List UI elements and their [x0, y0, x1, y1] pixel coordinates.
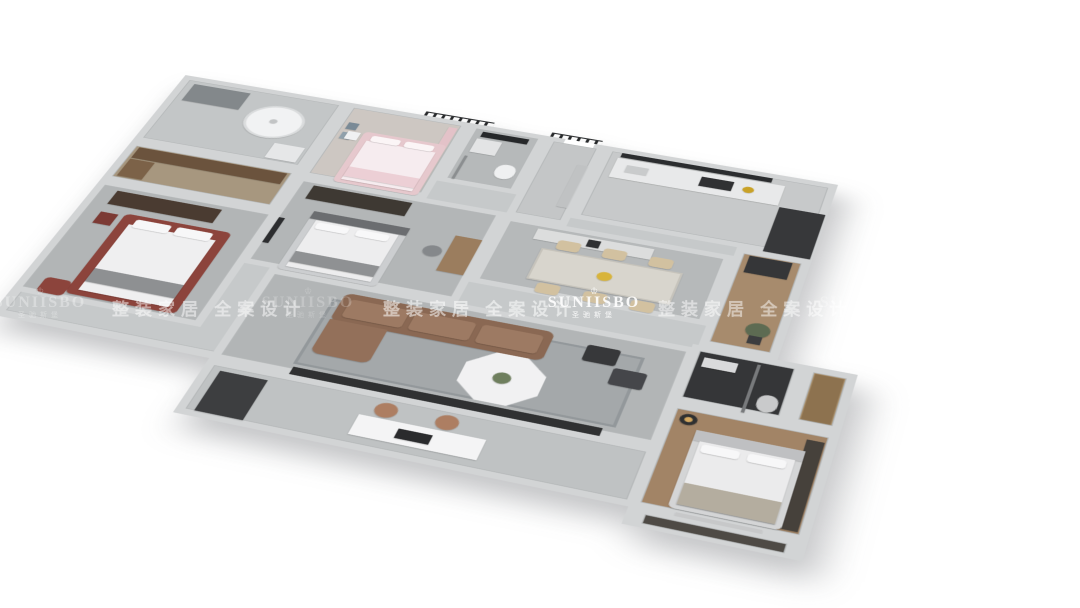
nightstand: [92, 211, 118, 225]
pantry-shelf: [763, 207, 826, 259]
kitchen-sink: [624, 165, 649, 176]
floor-lamp: [678, 413, 700, 427]
table-flowers: [595, 271, 614, 282]
gold-pot: [741, 186, 755, 194]
elder-bed-frame: [64, 214, 232, 315]
watermark-slogan: 整装家居 全案设计: [928, 295, 1080, 320]
plant-pot: [746, 335, 762, 345]
vase: [586, 239, 602, 248]
apartment-render-canvas: ♔ SUNIISBO 圣驰斯堡 整装家居 全案设计 ♔ SUNIISBO 圣驰斯…: [0, 0, 1080, 608]
bath-vanity: [701, 357, 739, 373]
toilet: [491, 163, 518, 180]
laptop: [394, 428, 433, 444]
toilet: [754, 394, 781, 415]
table-plant: [490, 371, 513, 385]
bath-vanity: [469, 138, 502, 156]
balcony-desk: [348, 414, 486, 460]
desk-chair: [420, 244, 445, 258]
desk: [436, 235, 482, 275]
lamp-glow: [683, 416, 693, 423]
sofa-cushion: [407, 312, 477, 341]
apartment-3d-floorplan: [0, 65, 923, 568]
wall-art: [345, 122, 360, 130]
closet-cabinet-side: [117, 159, 155, 180]
shower-glass: [451, 155, 468, 178]
cooktop: [698, 177, 734, 192]
sofa-cushion: [474, 324, 544, 354]
fridge: [743, 256, 792, 280]
bath-mirror: [182, 84, 251, 110]
laundry-cabinet: [194, 371, 268, 421]
accent-chair: [35, 277, 73, 297]
bath-vanity: [264, 143, 305, 163]
closet-cabinet: [801, 374, 844, 424]
